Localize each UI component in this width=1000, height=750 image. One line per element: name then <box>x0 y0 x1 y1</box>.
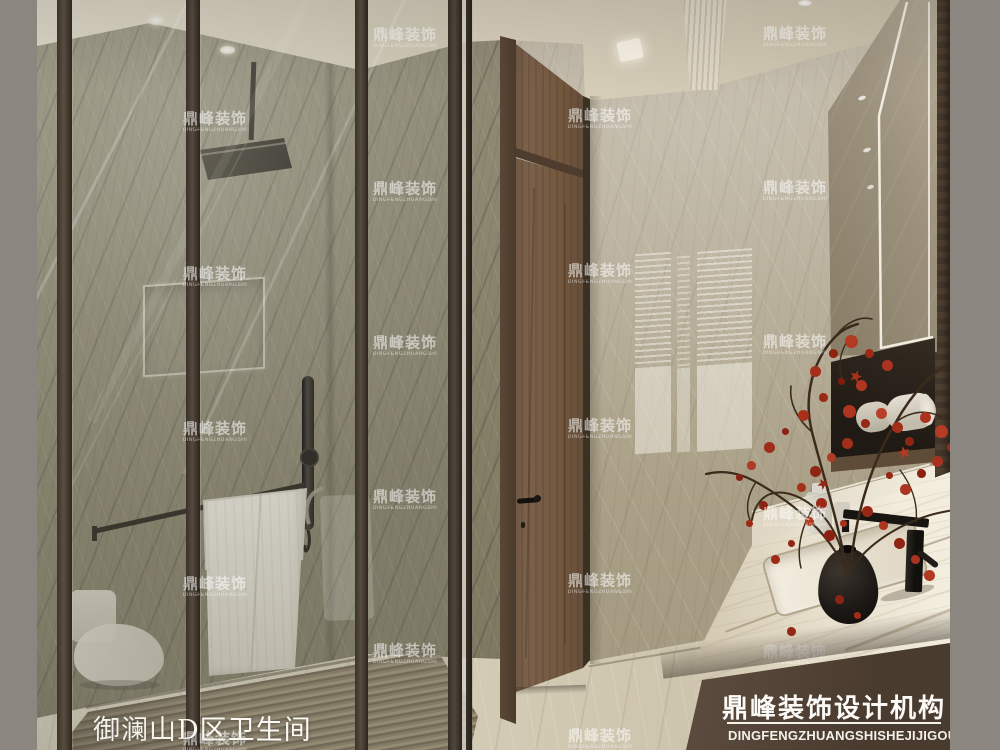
door-keyhole <box>521 522 525 528</box>
bathroom-door <box>500 36 590 728</box>
banner-divider <box>727 722 941 724</box>
glass-mullion <box>466 0 472 750</box>
door-jamb <box>500 36 517 728</box>
wall-light-reflection <box>635 252 671 455</box>
reflection-glow <box>677 367 690 452</box>
glass-mullion <box>355 0 368 750</box>
right-margin <box>950 0 1000 750</box>
reflection-stripes <box>635 252 671 369</box>
door-handle-rose <box>534 495 541 502</box>
reflection-stripes <box>697 248 752 366</box>
glass-mullion <box>186 0 200 750</box>
faucet-body <box>905 530 924 593</box>
glass-mullion <box>57 0 72 750</box>
reflection-glow <box>635 366 671 455</box>
door-panel-line <box>564 204 566 644</box>
studio-name-en: DINGFENGZHUANGSHISHEJIJIGOU <box>728 728 957 743</box>
glass-mullion <box>448 0 462 750</box>
faucet-spout-tip <box>842 520 849 532</box>
reflection-glow <box>697 362 752 452</box>
door-side-shadow <box>590 96 602 664</box>
wall-light-reflection <box>697 248 752 452</box>
vase-mouth <box>839 545 856 553</box>
studio-name-cn: 鼎峰装饰设计机构 <box>722 688 946 725</box>
door-bottom-shadow <box>514 685 586 696</box>
left-margin <box>0 0 37 750</box>
downlight-icon <box>798 0 812 6</box>
bathroom-render: 鼎峰装饰DINGFENGZHUANGSHI鼎峰装饰DINGFENGZHUANGS… <box>0 0 1000 750</box>
wall-light-reflection <box>677 256 690 453</box>
project-title: 御澜山D区卫生间 <box>93 708 312 747</box>
soap-bottle <box>806 492 832 534</box>
shower-glass-panel <box>37 0 473 750</box>
reflection-stripes <box>677 256 690 369</box>
